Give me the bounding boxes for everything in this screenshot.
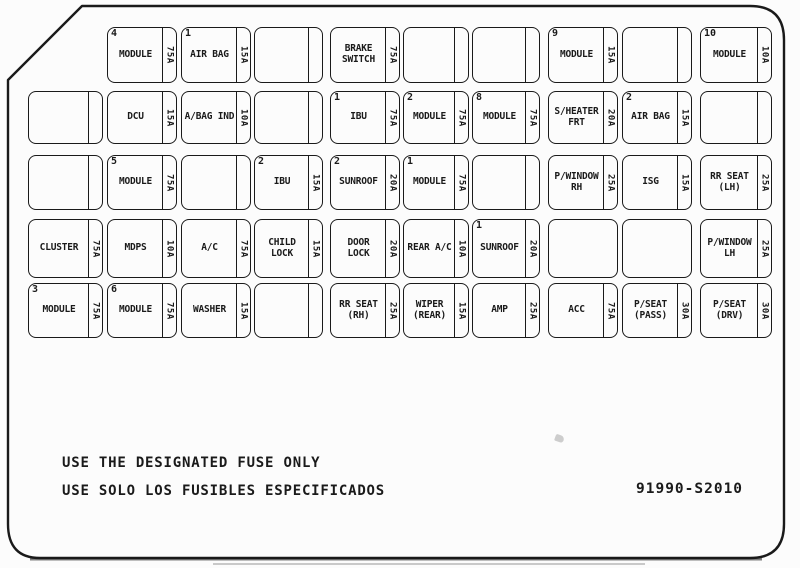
fuse-label: AIR BAG	[624, 92, 677, 143]
amp-strip	[525, 156, 539, 209]
fuse-cell: 1MODULE75A	[403, 155, 469, 210]
fuse-amp-rating: 25A	[525, 284, 539, 337]
fuse-label: S/HEATER FRT	[550, 92, 603, 143]
fuse-cell: MDPS10A	[107, 219, 177, 278]
fuse-amp-rating: 10A	[757, 28, 771, 82]
amp-strip	[677, 28, 691, 82]
fuse-amp-rating: 15A	[236, 28, 250, 82]
fuse-cell: A/C75A	[181, 219, 251, 278]
fuse-amp-rating: 15A	[603, 28, 617, 82]
fuse-label: ACC	[550, 284, 603, 337]
fuse-amp-rating: 15A	[454, 284, 468, 337]
fuse-label: P/WINDOW RH	[550, 156, 603, 209]
amp-strip	[308, 28, 322, 82]
amp-strip	[236, 156, 250, 209]
fuse-label: AMP	[474, 284, 525, 337]
fuse-label: MDPS	[109, 220, 162, 277]
fuse-amp-rating: 15A	[677, 92, 691, 143]
fuse-label: CLUSTER	[30, 220, 88, 277]
fuse-cell: 2MODULE75A	[403, 91, 469, 144]
fuse-cell: P/SEAT (PASS)30A	[622, 283, 692, 338]
fuse-amp-rating: 75A	[454, 92, 468, 143]
fuse-cell: 8MODULE75A	[472, 91, 540, 144]
fuse-label: MODULE	[702, 28, 757, 82]
fuse-amp-rating: 25A	[757, 156, 771, 209]
fuse-cell: WIPER (REAR)15A	[403, 283, 469, 338]
fuse-cell: DCU15A	[107, 91, 177, 144]
fuse-cell: S/HEATER FRT20A	[548, 91, 618, 144]
fuse-label: DCU	[109, 92, 162, 143]
fuse-label: CHILD LOCK	[256, 220, 308, 277]
fuse-label: P/SEAT (PASS)	[624, 284, 677, 337]
fuse-amp-rating: 10A	[236, 92, 250, 143]
fuse-label: RR SEAT (RH)	[332, 284, 385, 337]
fuse-amp-rating: 25A	[603, 156, 617, 209]
fuse-cell: 2AIR BAG15A	[622, 91, 692, 144]
empty-fuse-slot	[403, 27, 469, 83]
fuse-cell: ISG15A	[622, 155, 692, 210]
fuse-amp-rating: 20A	[385, 156, 399, 209]
fuse-cell: 4MODULE75A	[107, 27, 177, 83]
amp-strip	[308, 284, 322, 337]
amp-strip	[454, 28, 468, 82]
fuse-label: ISG	[624, 156, 677, 209]
fuse-amp-rating: 15A	[677, 156, 691, 209]
fuse-cell: 9MODULE15A	[548, 27, 618, 83]
fuse-label: MODULE	[405, 92, 454, 143]
fuse-amp-rating: 75A	[385, 28, 399, 82]
amp-strip	[525, 28, 539, 82]
fuse-label: SUNROOF	[332, 156, 385, 209]
fuse-label: RR SEAT (LH)	[702, 156, 757, 209]
fuse-cell: DOOR LOCK20A	[330, 219, 400, 278]
fuse-label: A/C	[183, 220, 236, 277]
fuse-amp-rating: 75A	[162, 284, 176, 337]
amp-strip	[88, 92, 102, 143]
fuse-label: MODULE	[109, 284, 162, 337]
fuse-cell: RR SEAT (LH)25A	[700, 155, 772, 210]
empty-fuse-slot	[622, 27, 692, 83]
fuse-amp-rating: 15A	[308, 220, 322, 277]
fuse-label: MODULE	[30, 284, 88, 337]
fuse-label: A/BAG IND	[183, 92, 236, 143]
fuse-cell: 2IBU15A	[254, 155, 323, 210]
empty-fuse-slot	[181, 155, 251, 210]
fuse-label: WASHER	[183, 284, 236, 337]
fuse-cell: CHILD LOCK15A	[254, 219, 323, 278]
fuse-amp-rating: 15A	[162, 92, 176, 143]
fuse-cell: CLUSTER75A	[28, 219, 103, 278]
fuse-cell: P/WINDOW RH25A	[548, 155, 618, 210]
scan-artifact-line	[213, 563, 645, 565]
fuse-label: AIR BAG	[183, 28, 236, 82]
fuse-cell: 3MODULE75A	[28, 283, 103, 338]
fuse-label: P/SEAT (DRV)	[702, 284, 757, 337]
fuse-cell: AMP25A	[472, 283, 540, 338]
fuse-amp-rating: 75A	[525, 92, 539, 143]
fuse-box-diagram: 4MODULE75A1AIR BAG15ABRAKE SWITCH75A9MOD…	[0, 0, 800, 568]
fuse-amp-rating: 75A	[603, 284, 617, 337]
fuse-cell: BRAKE SWITCH75A	[330, 27, 400, 83]
fuse-cell: 1IBU75A	[330, 91, 400, 144]
fuse-amp-rating: 10A	[162, 220, 176, 277]
fuse-label: IBU	[256, 156, 308, 209]
fuse-amp-rating: 20A	[603, 92, 617, 143]
fuse-amp-rating: 75A	[385, 92, 399, 143]
part-number: 91990-S2010	[636, 481, 743, 497]
fuse-label: WIPER (REAR)	[405, 284, 454, 337]
fuse-amp-rating: 30A	[677, 284, 691, 337]
empty-fuse-slot	[622, 219, 692, 278]
fuse-amp-rating: 75A	[162, 28, 176, 82]
fuse-label: MODULE	[109, 28, 162, 82]
fuse-cell: P/WINDOW LH25A	[700, 219, 772, 278]
fuse-label: MODULE	[550, 28, 603, 82]
empty-fuse-slot	[254, 283, 323, 338]
panel-border-path	[8, 6, 784, 558]
fuse-cell: 5MODULE75A	[107, 155, 177, 210]
fuse-amp-rating: 75A	[454, 156, 468, 209]
fuse-cell: RR SEAT (RH)25A	[330, 283, 400, 338]
amp-strip	[757, 92, 771, 143]
fuse-cell: 10MODULE10A	[700, 27, 772, 83]
fuse-label: MODULE	[109, 156, 162, 209]
fuse-amp-rating: 10A	[454, 220, 468, 277]
fuse-amp-rating: 15A	[236, 284, 250, 337]
footer-warning-spanish: USE SOLO LOS FUSIBLES ESPECIFICADOS	[62, 483, 385, 499]
fuse-cell: 6MODULE75A	[107, 283, 177, 338]
fuse-label: SUNROOF	[474, 220, 525, 277]
empty-fuse-slot	[472, 155, 540, 210]
fuse-amp-rating: 30A	[757, 284, 771, 337]
fuse-label: DOOR LOCK	[332, 220, 385, 277]
amp-strip	[88, 156, 102, 209]
fuse-cell: 2SUNROOF20A	[330, 155, 400, 210]
fuse-amp-rating: 20A	[525, 220, 539, 277]
amp-strip	[308, 92, 322, 143]
fuse-amp-rating: 25A	[385, 284, 399, 337]
fuse-label: MODULE	[474, 92, 525, 143]
fuse-label: P/WINDOW LH	[702, 220, 757, 277]
fuse-amp-rating: 15A	[308, 156, 322, 209]
fuse-cell: P/SEAT (DRV)30A	[700, 283, 772, 338]
fuse-amp-rating: 20A	[385, 220, 399, 277]
fuse-cell: REAR A/C10A	[403, 219, 469, 278]
empty-fuse-slot	[548, 219, 618, 278]
fuse-cell: A/BAG IND10A	[181, 91, 251, 144]
empty-fuse-slot	[28, 91, 103, 144]
fuse-label: REAR A/C	[405, 220, 454, 277]
empty-fuse-slot	[254, 91, 323, 144]
fuse-amp-rating: 75A	[88, 284, 102, 337]
fuse-cell: 1AIR BAG15A	[181, 27, 251, 83]
empty-fuse-slot	[700, 91, 772, 144]
empty-fuse-slot	[28, 155, 103, 210]
fuse-amp-rating: 75A	[88, 220, 102, 277]
fuse-cell: 1SUNROOF20A	[472, 219, 540, 278]
empty-fuse-slot	[472, 27, 540, 83]
fuse-label: BRAKE SWITCH	[332, 28, 385, 82]
fuse-cell: ACC75A	[548, 283, 618, 338]
fuse-amp-rating: 25A	[757, 220, 771, 277]
fuse-label: IBU	[332, 92, 385, 143]
fuse-amp-rating: 75A	[162, 156, 176, 209]
fuse-cell: WASHER15A	[181, 283, 251, 338]
footer-warning-english: USE THE DESIGNATED FUSE ONLY	[62, 455, 320, 471]
fuse-amp-rating: 75A	[236, 220, 250, 277]
empty-fuse-slot	[254, 27, 323, 83]
fuse-label: MODULE	[405, 156, 454, 209]
